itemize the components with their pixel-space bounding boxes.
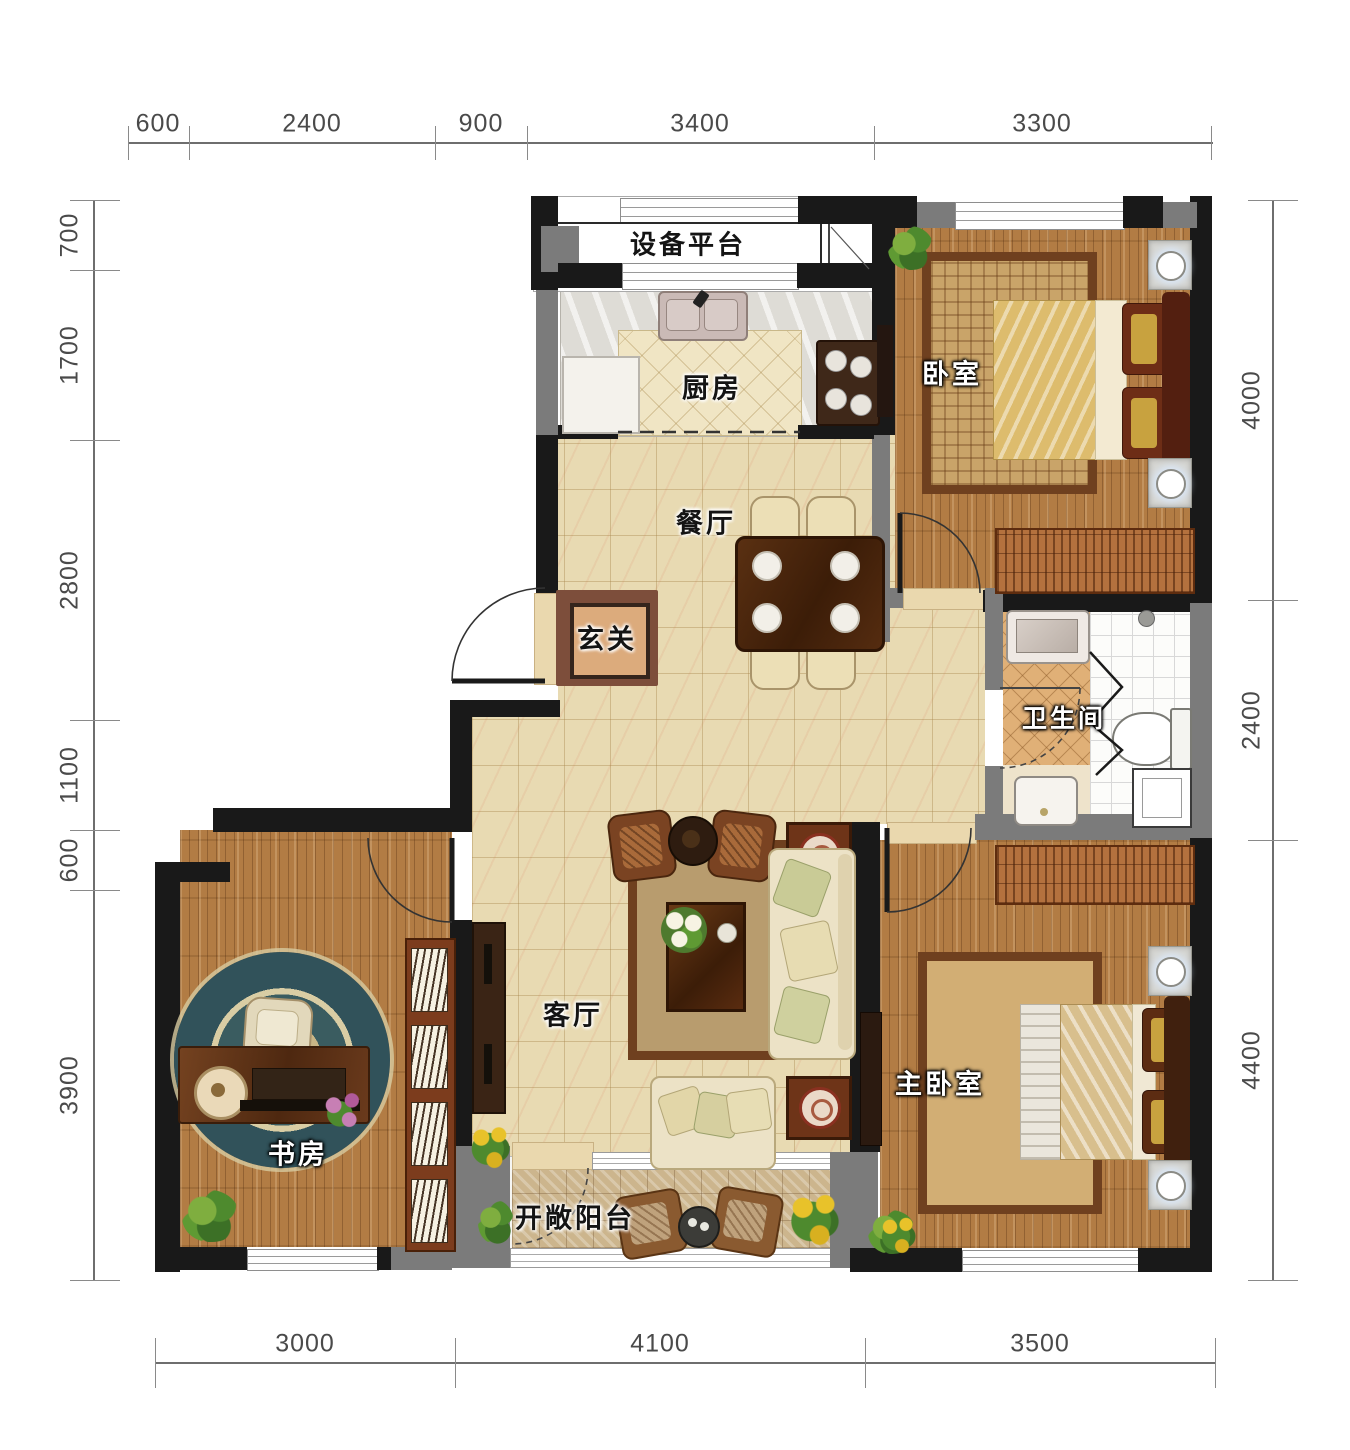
door-swing-overlay bbox=[155, 195, 1215, 1275]
dim-top-600: 600 bbox=[136, 110, 181, 139]
dim-tick bbox=[435, 126, 436, 160]
label-equipment-platform: 设备平台 bbox=[630, 225, 746, 262]
dim-bottom-3500: 3500 bbox=[1010, 1330, 1070, 1359]
dim-tick bbox=[527, 126, 528, 160]
bedroom-door-arc bbox=[900, 513, 980, 593]
dim-right-4000: 4000 bbox=[1238, 370, 1267, 430]
label-bedroom: 卧室 bbox=[922, 353, 982, 392]
dim-line-bottom bbox=[155, 1362, 1215, 1364]
dim-tick bbox=[1211, 126, 1212, 160]
label-master-bedroom: 主卧室 bbox=[895, 1063, 985, 1102]
dim-tick bbox=[70, 830, 120, 831]
dim-left-700: 700 bbox=[56, 213, 85, 258]
label-balcony: 开敞阳台 bbox=[515, 1197, 635, 1236]
dim-tick bbox=[1248, 200, 1298, 201]
dim-left-3900: 3900 bbox=[56, 1055, 85, 1115]
dim-right-4400: 4400 bbox=[1238, 1030, 1267, 1090]
dim-left-2800: 2800 bbox=[56, 550, 85, 610]
dim-tick bbox=[1248, 840, 1298, 841]
dim-tick bbox=[70, 440, 120, 441]
dim-top-2400: 2400 bbox=[282, 110, 342, 139]
study-door-arc bbox=[368, 838, 452, 922]
dim-tick bbox=[70, 270, 120, 271]
dim-tick bbox=[1248, 600, 1298, 601]
dim-tick bbox=[874, 126, 875, 160]
dim-tick bbox=[70, 200, 120, 201]
dim-top-3300: 3300 bbox=[1012, 110, 1072, 139]
dim-tick bbox=[70, 720, 120, 721]
label-living: 客厅 bbox=[543, 994, 603, 1033]
entry-door-arc bbox=[452, 588, 545, 681]
dim-tick bbox=[70, 890, 120, 891]
dim-left-1700: 1700 bbox=[56, 325, 85, 385]
dim-tick bbox=[1215, 1338, 1216, 1388]
dim-tick bbox=[128, 126, 129, 160]
dim-line-top bbox=[128, 142, 1213, 144]
label-study: 书房 bbox=[268, 1133, 328, 1172]
dim-tick bbox=[70, 1280, 120, 1281]
dim-tick bbox=[1248, 1280, 1298, 1281]
dim-tick bbox=[865, 1338, 866, 1388]
master-door-arc bbox=[887, 828, 971, 912]
dim-bottom-3000: 3000 bbox=[275, 1330, 335, 1359]
floor-plan-page: 600 2400 900 3400 3300 700 1700 2800 110… bbox=[0, 0, 1350, 1450]
ac-unit-diagonal bbox=[831, 227, 869, 269]
dim-bottom-4100: 4100 bbox=[630, 1330, 690, 1359]
label-dining: 餐厅 bbox=[676, 502, 736, 541]
dim-line-right bbox=[1272, 200, 1274, 1280]
dim-right-2400: 2400 bbox=[1238, 690, 1267, 750]
dim-left-600: 600 bbox=[56, 838, 85, 883]
label-kitchen: 厨房 bbox=[682, 367, 742, 406]
dim-tick bbox=[189, 126, 190, 160]
dim-tick bbox=[155, 1338, 156, 1388]
label-foyer: 玄关 bbox=[577, 618, 637, 657]
dim-line-left bbox=[93, 200, 95, 1280]
label-bathroom: 卫生间 bbox=[1022, 699, 1106, 735]
dim-tick bbox=[455, 1338, 456, 1388]
dim-top-900: 900 bbox=[459, 110, 504, 139]
dim-left-1100: 1100 bbox=[56, 746, 85, 804]
dim-top-3400: 3400 bbox=[670, 110, 730, 139]
